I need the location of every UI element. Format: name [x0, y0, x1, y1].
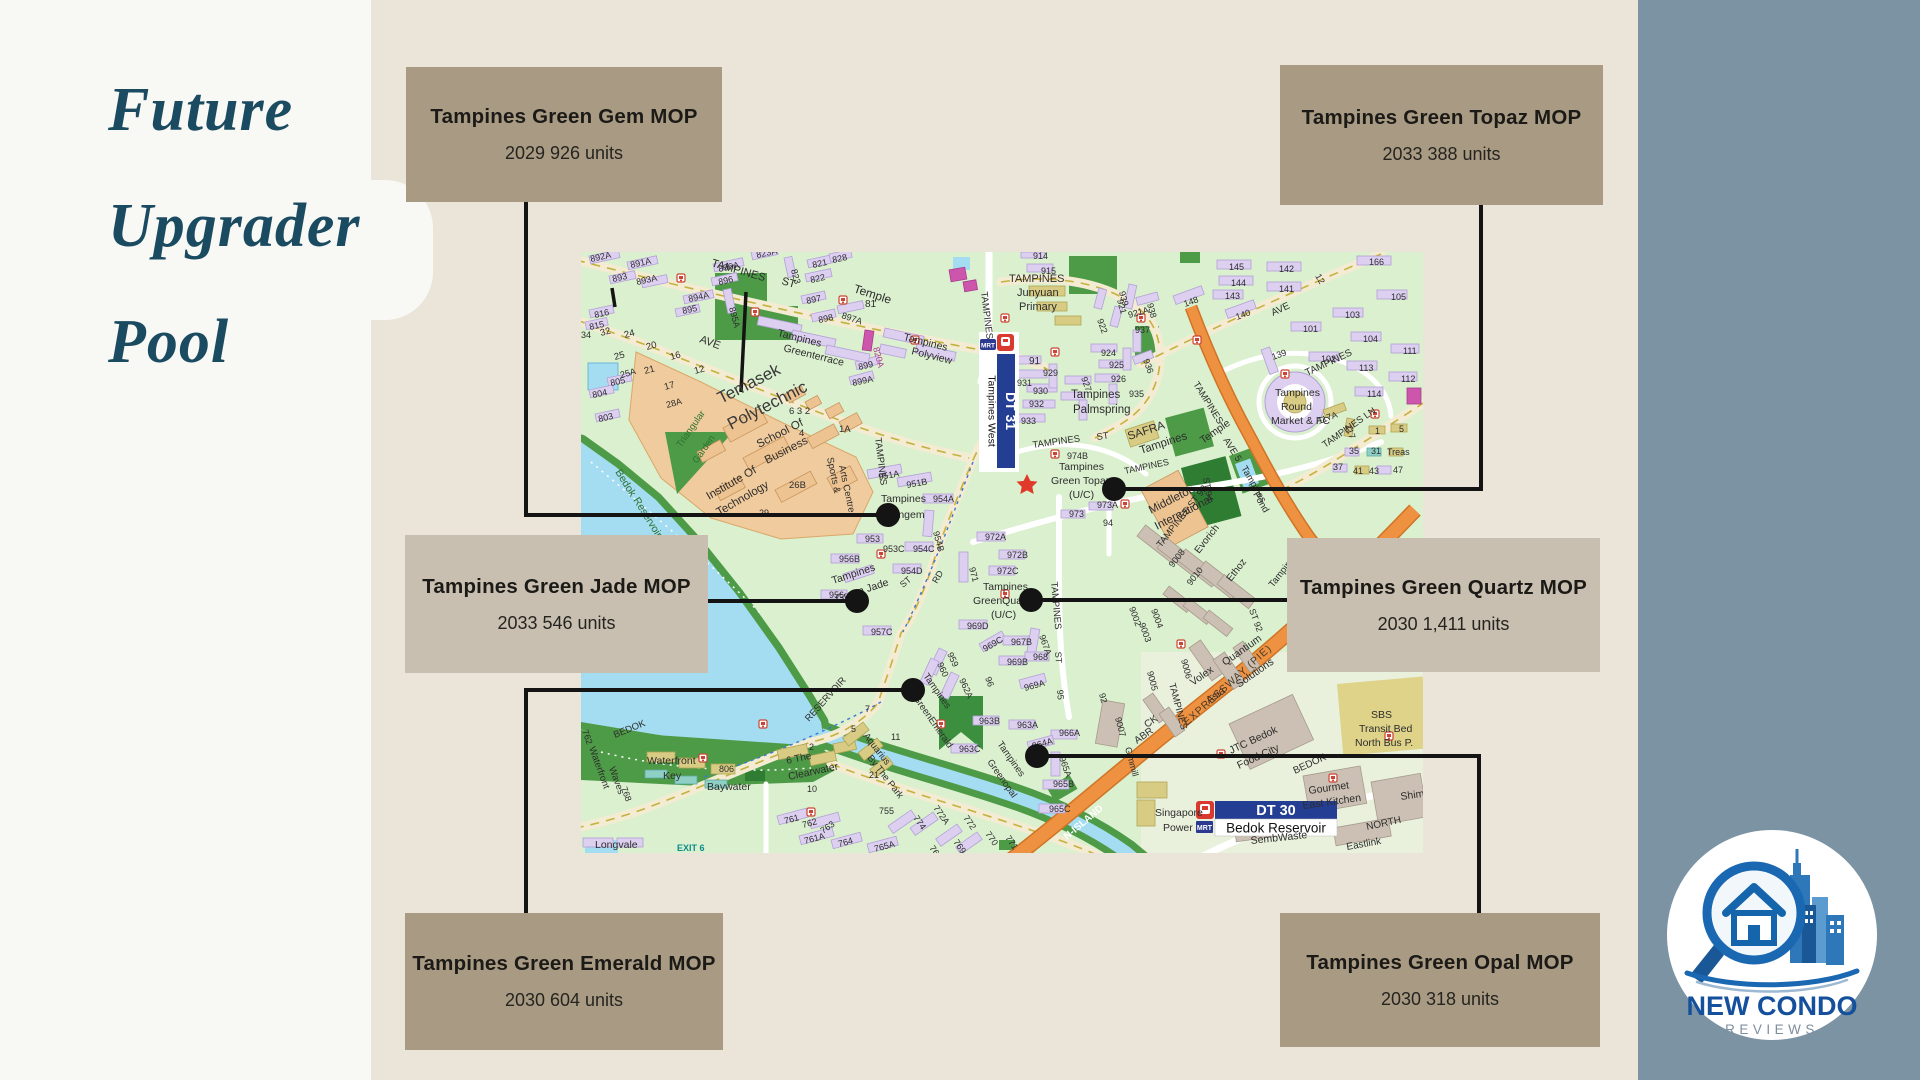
map-label: 963A — [1017, 720, 1038, 730]
map-label: 1A — [839, 424, 851, 435]
title-line-3: Pool — [108, 284, 448, 400]
map-label: 103 — [1345, 310, 1360, 320]
map-label: 6 3 2 — [789, 406, 810, 417]
map-label: 926 — [1111, 374, 1126, 384]
callout-title: Tampines Green Jade MOP — [422, 575, 691, 599]
callout-gem: Tampines Green Gem MOP 2029 926 units — [406, 67, 722, 202]
connector-quartz-horizontal — [1029, 598, 1291, 602]
map-label: Transit Bed — [1359, 723, 1412, 735]
connector-topaz-vertical — [1479, 203, 1483, 491]
map-label: 145 — [1229, 262, 1244, 272]
title-line-1: Future — [108, 52, 448, 168]
map-label: 956B — [839, 554, 860, 564]
map-label: 968 — [1033, 652, 1048, 662]
map-label: 104 — [1363, 334, 1378, 344]
map-label: Palmspring — [1073, 404, 1131, 416]
map-label: 26B — [789, 480, 806, 491]
callout-subtitle: 2029 926 units — [505, 143, 623, 164]
connector-topaz-horizontal — [1112, 487, 1483, 491]
callout-subtitle: 2033 388 units — [1382, 144, 1500, 165]
map-dot-emerald — [901, 678, 925, 702]
map-label: 963C — [959, 744, 981, 754]
callout-subtitle: 2030 604 units — [505, 990, 623, 1011]
map-label: 972A — [985, 532, 1006, 542]
map-label: (U/C) — [1069, 489, 1094, 501]
map-label: 953 — [865, 534, 880, 544]
map-label: 43 — [1369, 466, 1379, 476]
map-label: 94 — [1103, 518, 1113, 528]
connector-opal-horizontal — [1035, 754, 1481, 758]
map-label: ST — [1053, 651, 1064, 664]
map-label: Tampines — [1071, 389, 1120, 401]
callout-topaz: Tampines Green Topaz MOP 2033 388 units — [1280, 65, 1603, 205]
map-label: 41 — [1353, 466, 1363, 476]
map-label: 937 — [1135, 325, 1150, 335]
connector-gem-vertical — [524, 202, 528, 517]
map-label: EXIT 6 — [677, 843, 705, 853]
map-label: Treas — [1387, 447, 1410, 457]
map-label: 973 — [1069, 509, 1084, 519]
map-label: 965B — [1053, 779, 1074, 789]
map-label: 142 — [1279, 264, 1294, 274]
map-label: 37 — [1333, 462, 1343, 472]
map-label: 47 — [1393, 465, 1403, 475]
map-label: 144 — [1231, 278, 1246, 288]
map-dot-topaz — [1102, 477, 1126, 501]
map-label: 5 — [851, 724, 856, 734]
connector-emerald-vertical — [524, 688, 528, 915]
mrt-dt31-badge: MRT DT 31 Tampines West — [979, 332, 1019, 472]
map-label: SBS — [1371, 709, 1392, 721]
map-label: 143 — [1225, 291, 1240, 301]
map-label: 957C — [871, 627, 893, 637]
map-label: 925 — [1109, 360, 1124, 370]
map-label: Power — [1163, 822, 1193, 834]
map-label: Baywater — [707, 781, 751, 793]
map-label: 931 — [1017, 378, 1032, 388]
connector-opal-vertical — [1477, 754, 1481, 915]
title-line-2: Upgrader — [108, 168, 448, 284]
callout-title: Tampines Green Quartz MOP — [1300, 576, 1587, 600]
map-label: 113 — [1359, 363, 1373, 373]
map-label: 141 — [1279, 284, 1294, 294]
map-label: Key — [663, 770, 682, 782]
callout-jade: Tampines Green Jade MOP 2033 546 units — [405, 535, 708, 673]
map-label: 91 — [1029, 356, 1041, 367]
map-label: 972C — [997, 566, 1019, 576]
map-label: Longvale — [595, 839, 638, 851]
callout-subtitle: 2030 1,411 units — [1378, 614, 1510, 635]
callout-title: Tampines Green Emerald MOP — [412, 952, 715, 976]
map-label: 915 — [1041, 266, 1056, 276]
map-label: 5 — [1399, 424, 1404, 434]
map-label: 972B — [1007, 550, 1028, 560]
logo-tagline: REVIEWS — [1725, 1022, 1819, 1037]
callout-subtitle: 2033 546 units — [497, 613, 615, 634]
map-label: 935 — [1129, 389, 1144, 399]
map-label: 2 — [809, 742, 814, 752]
map-label: 914 — [1033, 252, 1048, 261]
map-label: 114 — [1367, 389, 1381, 399]
map-label: TAMPINES — [1009, 273, 1064, 285]
callout-quartz: Tampines Green Quartz MOP 2030 1,411 uni… — [1287, 538, 1600, 672]
mrt-label: MRT — [1197, 825, 1213, 832]
new-condo-reviews-logo: NEW CONDO REVIEWS — [1662, 825, 1882, 1045]
map-dot-quartz — [1019, 588, 1043, 612]
map-label: 965C — [1049, 804, 1071, 814]
map-label: 924 — [1101, 348, 1116, 358]
callout-title: Tampines Green Opal MOP — [1306, 951, 1573, 975]
connector-emerald-horizontal — [524, 688, 915, 692]
map-label: 933 — [1021, 416, 1036, 426]
mrt-label: MRT — [981, 343, 995, 350]
map-label: Singapore — [1155, 807, 1203, 819]
map-label: 11 — [891, 732, 900, 742]
map-label: North Bus P. — [1355, 737, 1413, 749]
map-label: 966A — [1059, 728, 1080, 738]
map-label: 111 — [1403, 346, 1417, 356]
map-label: 954A — [933, 494, 954, 504]
map-label: ST — [1096, 430, 1110, 443]
map-label: Primary — [1019, 301, 1057, 313]
callout-title: Tampines Green Topaz MOP — [1302, 106, 1582, 130]
map-dot-gem — [876, 503, 900, 527]
map-label: 21 — [869, 770, 879, 780]
connector-jade-horizontal — [706, 599, 859, 603]
map-label: 963B — [979, 716, 1000, 726]
logo-name: NEW CONDO — [1687, 991, 1858, 1021]
callout-opal: Tampines Green Opal MOP 2030 318 units — [1280, 913, 1600, 1047]
map-label: 81 — [865, 299, 877, 310]
callout-emerald: Tampines Green Emerald MOP 2030 604 unit… — [405, 913, 723, 1050]
map-label: 10 — [807, 784, 817, 794]
map-dot-opal — [1025, 744, 1049, 768]
dt31-code: DT 31 — [1003, 392, 1019, 430]
map-label: Waterfront — [647, 755, 696, 767]
map-label: 973A — [1097, 500, 1118, 510]
map-label: 969D — [967, 621, 989, 631]
map-label: Round — [1281, 401, 1312, 413]
map-label: 755 — [879, 806, 894, 816]
map-label: (U/C) — [991, 609, 1016, 621]
map-dot-jade — [845, 589, 869, 613]
map-label: 954D — [901, 566, 923, 576]
map-label: 101 — [1303, 324, 1318, 334]
map-label: 112 — [1401, 374, 1415, 384]
dt31-name: Tampines West — [986, 375, 998, 447]
page-title: Future Upgrader Pool — [108, 52, 448, 400]
map-label: 7 — [865, 704, 870, 714]
map-label: 105 — [1391, 292, 1406, 302]
slide-canvas: Future Upgrader Pool — [0, 0, 1920, 1080]
map-label: 954C — [913, 544, 935, 554]
map-label: 4 — [799, 428, 804, 439]
map-label: 806 — [719, 764, 734, 774]
map-label: 166 — [1369, 257, 1384, 267]
map-label: 974B — [1067, 451, 1088, 461]
map-label: Junyuan — [1017, 287, 1059, 299]
map-label: 929 — [1043, 368, 1058, 378]
map-label: 95 — [1055, 689, 1066, 700]
callout-subtitle: 2030 318 units — [1381, 989, 1499, 1010]
map-label: Tampines — [1059, 461, 1104, 473]
map-label: 930 — [1033, 386, 1048, 396]
map-label: 969B — [1007, 657, 1028, 667]
connector-gem-horizontal — [524, 513, 888, 517]
map-label: 31 — [1371, 446, 1381, 456]
map-label: 967B — [1011, 637, 1032, 647]
dt30-code: DT 30 — [1256, 803, 1296, 819]
map-label: Tampines — [1275, 387, 1320, 399]
map-label: 953C — [883, 544, 905, 554]
callout-title: Tampines Green Gem MOP — [430, 105, 697, 129]
map-label: 35 — [1349, 446, 1359, 456]
map-label: 1 — [1375, 426, 1380, 436]
map-label: 932 — [1029, 399, 1044, 409]
